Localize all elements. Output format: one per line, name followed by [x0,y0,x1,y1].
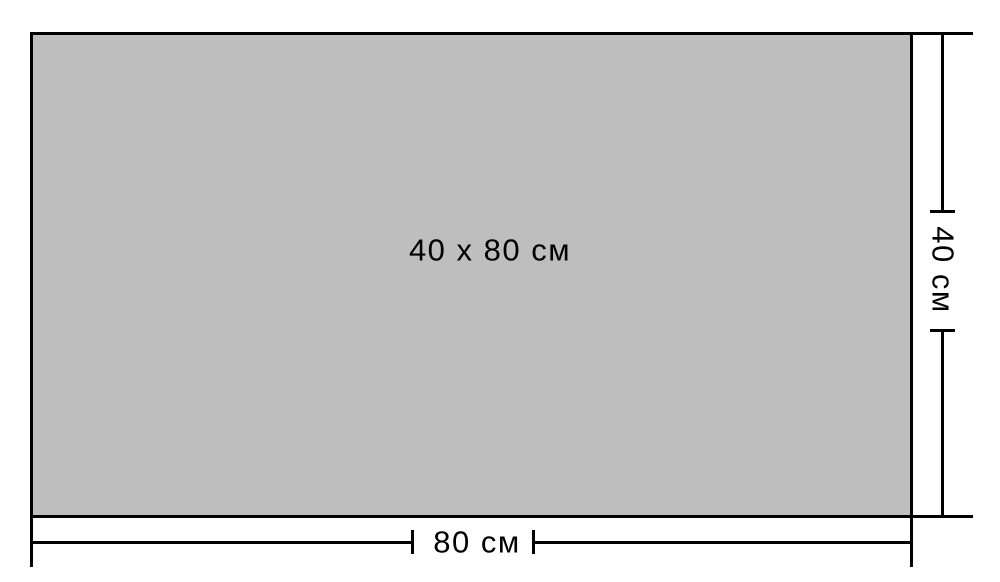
height-dimension-line-top [941,35,944,211]
width-dimension-line-left [30,541,412,544]
height-extension-line-bottom [913,515,973,518]
dimension-diagram: 40 x 80 см 80 см 40 см [0,0,1000,582]
size-label: 40 x 80 см [409,235,571,266]
measured-rectangle [30,32,913,518]
height-dimension-line-bottom [941,332,944,515]
height-label: 40 см [928,226,959,313]
height-dimension-tick-top [930,210,955,213]
width-dimension-tick-left [411,530,414,554]
width-label: 80 см [433,527,520,558]
width-dimension-line-right [535,541,913,544]
